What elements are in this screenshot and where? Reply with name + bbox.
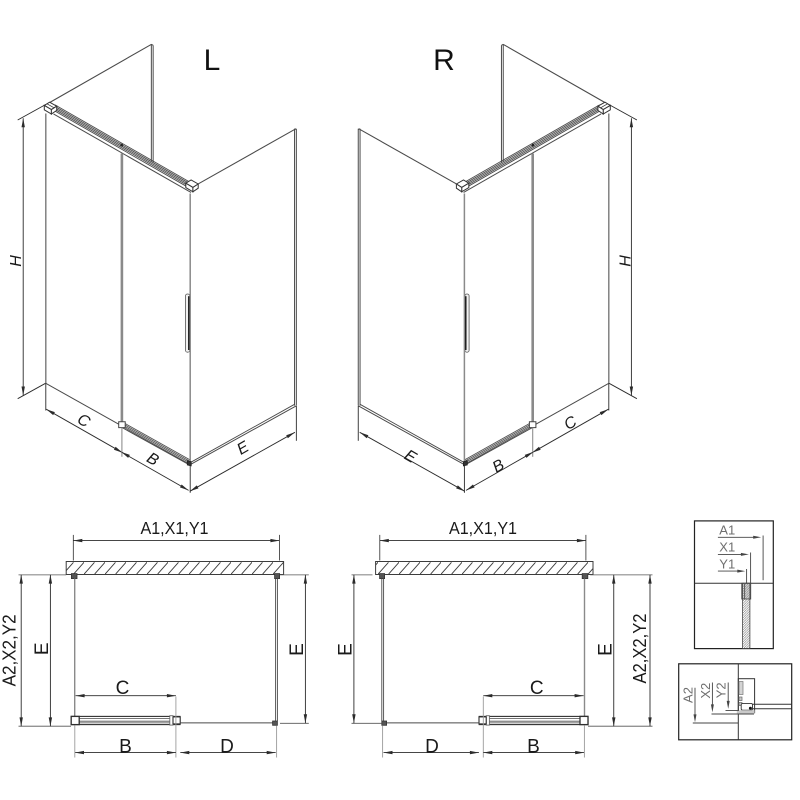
svg-text:C: C [530, 678, 544, 699]
svg-text:E: E [234, 438, 252, 458]
svg-text:D: D [425, 736, 439, 757]
svg-text:B: B [490, 456, 508, 476]
svg-text:E: E [335, 643, 356, 656]
svg-text:E: E [287, 643, 308, 656]
svg-text:Y1: Y1 [719, 557, 735, 572]
svg-text:L: L [204, 44, 221, 77]
svg-text:X1: X1 [719, 540, 735, 555]
svg-text:E: E [32, 642, 53, 655]
svg-text:H: H [8, 255, 25, 267]
svg-text:C: C [561, 413, 580, 434]
svg-text:C: C [116, 678, 130, 699]
svg-text:R: R [433, 44, 455, 77]
svg-text:E: E [595, 643, 616, 656]
svg-text:A2: A2 [681, 687, 696, 703]
svg-text:B: B [119, 736, 132, 757]
svg-text:A2,X2,Y2: A2,X2,Y2 [630, 614, 650, 684]
svg-text:A1,X1,Y1: A1,X1,Y1 [141, 518, 209, 538]
svg-text:A2,X2,Y2: A2,X2,Y2 [0, 614, 20, 686]
svg-text:Y2: Y2 [714, 682, 729, 698]
svg-text:H: H [618, 255, 635, 267]
svg-text:A1,X1,Y1: A1,X1,Y1 [449, 518, 517, 538]
svg-text:B: B [527, 736, 540, 757]
svg-text:B: B [144, 450, 162, 470]
svg-text:A1: A1 [719, 522, 735, 537]
svg-text:C: C [74, 411, 93, 432]
svg-text:X2: X2 [698, 683, 713, 699]
svg-text:D: D [220, 736, 234, 757]
